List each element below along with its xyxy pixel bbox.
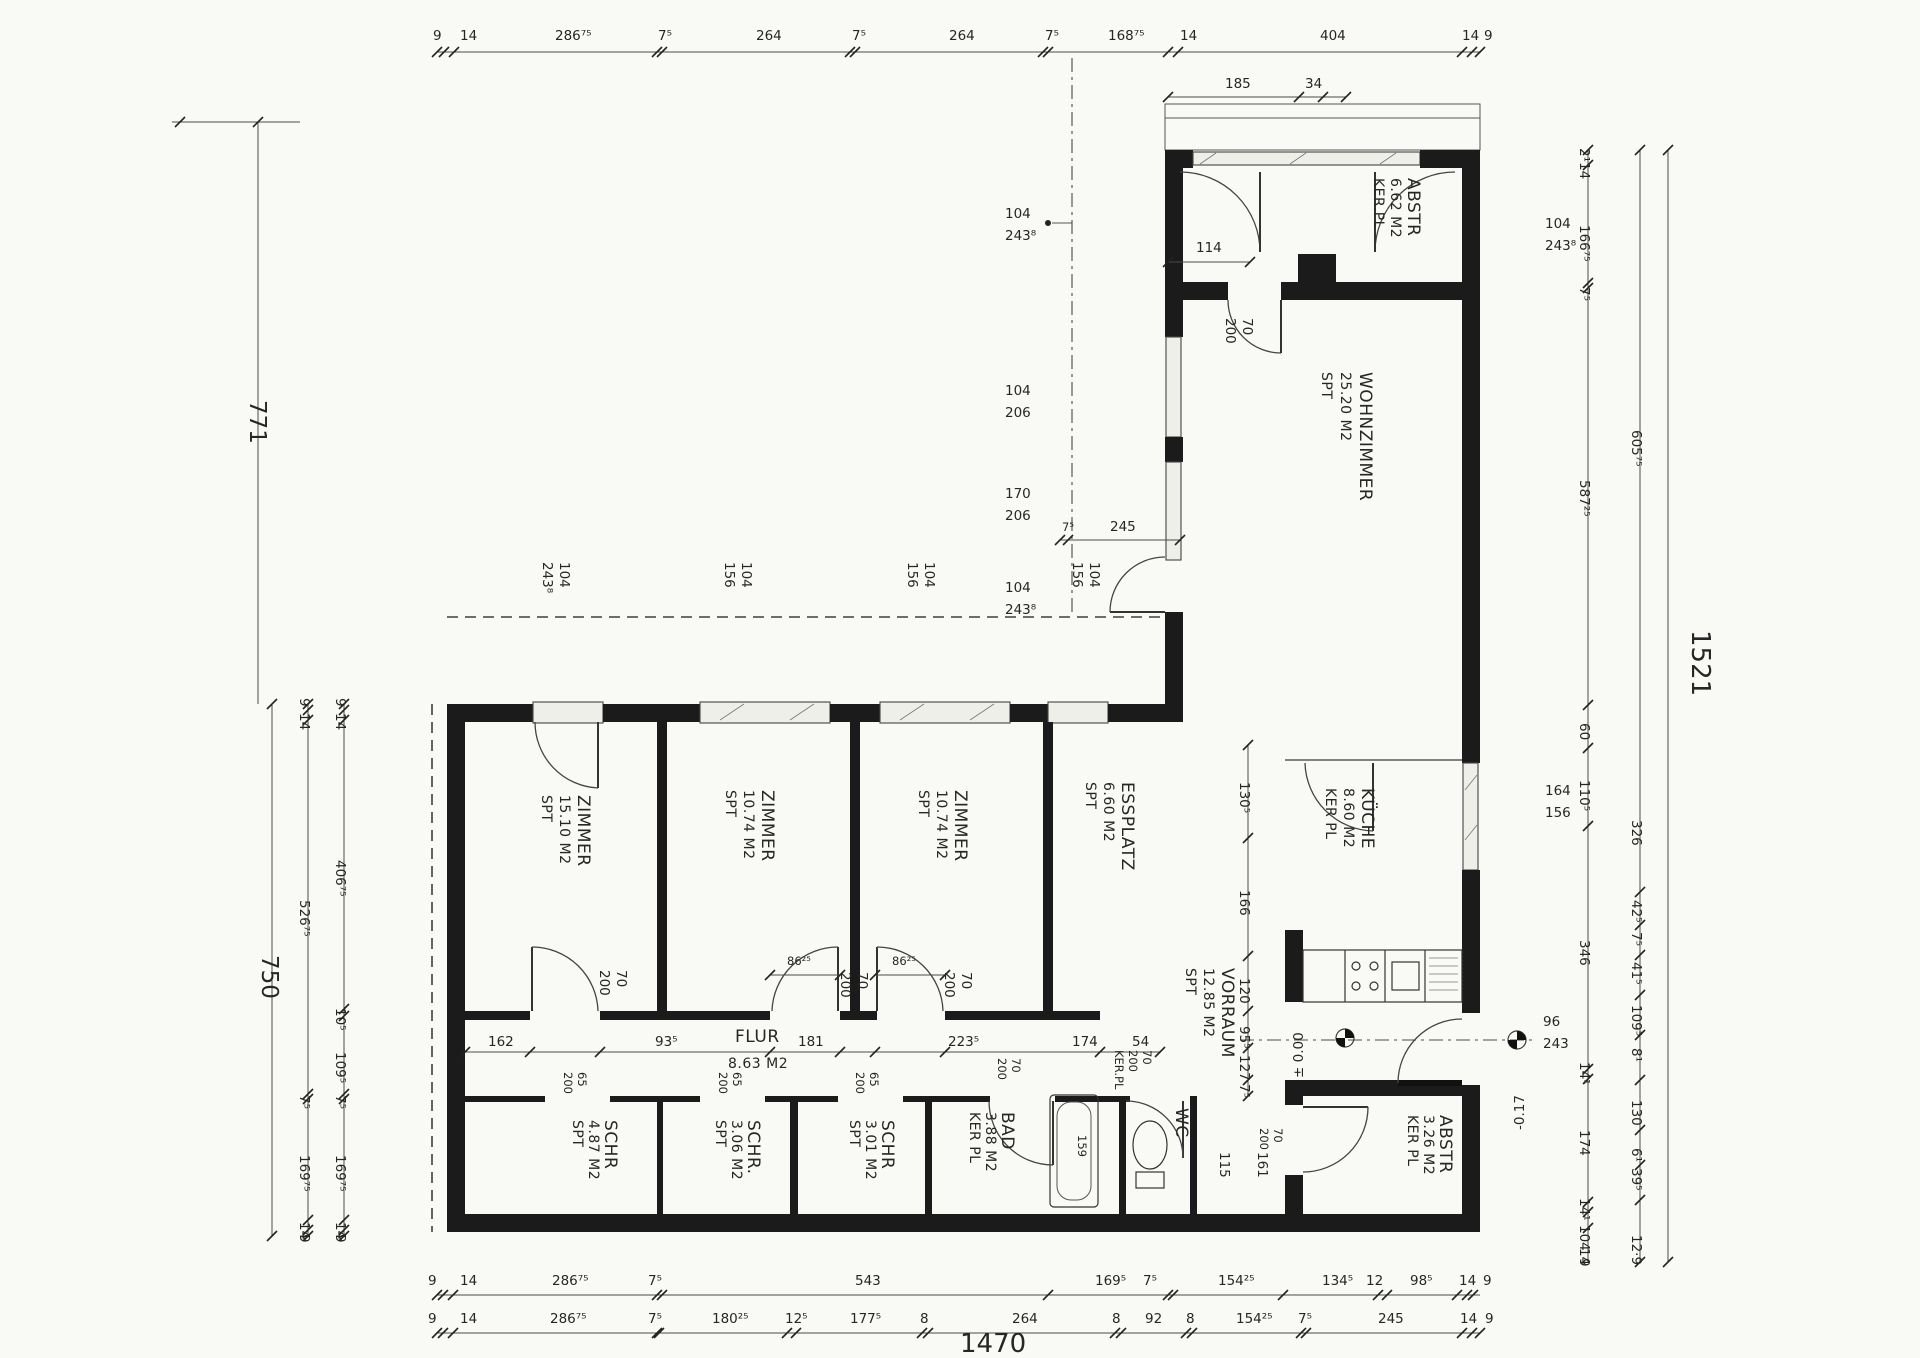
room-schr2: SCHR. 3.06 M2 SPT [712,1120,763,1180]
svg-text:164: 164 [1545,783,1571,799]
svg-text:130⁵: 130⁵ [1236,782,1252,813]
svg-text:14: 14 [460,1273,477,1289]
svg-text:104: 104 [921,562,937,588]
svg-text:7⁵: 7⁵ [296,1095,312,1109]
essplatz-window [1048,702,1108,723]
svg-text:7⁵: 7⁵ [648,1311,662,1327]
svg-text:587²⁵: 587²⁵ [1576,480,1592,517]
dim-chain-right2: 605⁷⁵32642⁵7⁵41⁵109⁵8¹1306¹39⁵12·9 [1628,430,1644,1265]
svg-text:KER PL: KER PL [1404,1115,1420,1166]
dim-chain-bottom2: 914286⁷⁵7⁵180²⁵12⁵177⁵82648928154²⁵7⁵245… [428,1311,1494,1327]
room-bad: BAD 3.88 M2 KER PL [966,1112,1017,1172]
kitchen-window [1463,763,1478,870]
svg-text:326: 326 [1628,820,1644,846]
svg-text:54: 54 [1132,1034,1149,1050]
svg-text:14: 14 [1462,28,1479,44]
svg-text:65: 65 [867,1072,881,1087]
toilet-bowl [1133,1121,1167,1169]
svg-text:110⁵: 110⁵ [1576,780,1592,811]
svg-text:9: 9 [433,28,442,44]
svg-text:7⁵: 7⁵ [332,1095,348,1109]
svg-text:9: 9 [1483,1273,1492,1289]
kitchen-fixtures [1303,950,1462,1002]
svg-text:70: 70 [958,972,974,989]
svg-text:ABSTR: ABSTR [1403,178,1423,236]
svg-text:543: 543 [855,1273,881,1289]
svg-text:104: 104 [1005,580,1031,596]
right-total: 1521 [1685,630,1715,696]
vestibule-dim-2: 161 [1254,1152,1270,1178]
svg-text:134⁵: 134⁵ [1322,1273,1353,1289]
svg-text:KER.PL: KER.PL [1370,178,1386,229]
svg-text:154²⁵: 154²⁵ [1218,1273,1255,1289]
interior-walls [465,254,1462,1232]
svg-text:264: 264 [1012,1311,1038,1327]
dim-chain-right1: 2¹14166⁷⁵7⁵587²⁵60110⁵34614¹17414¹104149 [1576,148,1592,1267]
svg-text:34: 34 [1305,76,1322,92]
zimmer1-window [533,702,603,723]
svg-text:15.10 M2: 15.10 M2 [556,795,572,865]
svg-text:12·9: 12·9 [1628,1235,1644,1265]
svg-text:243: 243 [1543,1036,1569,1052]
room-kueche: KÜCHE 8.60 M2 KER PL [1322,788,1379,849]
svg-text:8: 8 [1186,1311,1195,1327]
svg-text:14: 14 [1576,162,1592,179]
svg-text:9: 9 [296,1234,312,1243]
svg-text:406⁷⁵: 406⁷⁵ [332,860,348,897]
svg-text:WOHNZIMMER: WOHNZIMMER [1355,372,1375,501]
svg-text:7⁵: 7⁵ [1628,932,1644,946]
svg-text:243⁸: 243⁸ [1545,238,1576,254]
stove-burner [1370,962,1378,970]
svg-text:109⁵: 109⁵ [1628,1005,1644,1036]
svg-text:162: 162 [488,1034,514,1050]
svg-text:104: 104 [556,562,572,588]
svg-text:181: 181 [798,1034,824,1050]
svg-text:SPT: SPT [1318,372,1334,399]
svg-text:404: 404 [1320,28,1346,44]
svg-text:8.60 M2: 8.60 M2 [1340,788,1356,848]
svg-text:SPT: SPT [1182,968,1198,995]
svg-text:243⁸: 243⁸ [1005,602,1036,618]
svg-text:93⁵: 93⁵ [655,1034,678,1050]
svg-text:60: 60 [1576,723,1592,740]
svg-text:95⁵: 95⁵ [1236,1026,1252,1049]
toilet-tank [1136,1172,1164,1188]
svg-text:10⁵: 10⁵ [332,1008,348,1031]
svg-text:70: 70 [613,970,629,987]
svg-text:42⁵: 42⁵ [1628,900,1644,923]
svg-text:14: 14 [1180,28,1197,44]
svg-text:243⁸: 243⁸ [539,562,555,593]
stove-burner [1352,962,1360,970]
svg-text:98⁵: 98⁵ [1410,1273,1433,1289]
svg-text:3.01 M2: 3.01 M2 [862,1120,878,1180]
svg-text:86²⁵: 86²⁵ [787,954,811,968]
svg-text:14: 14 [1459,1273,1476,1289]
svg-text:ZIMMER: ZIMMER [950,790,970,862]
svg-text:200: 200 [837,972,853,998]
svg-text:SPT: SPT [538,795,554,822]
room-flur: FLUR 8.63 M2 [728,1027,788,1072]
wohnzimmer-window-2 [1166,462,1181,560]
kitchen-sink [1392,962,1419,990]
svg-text:7⁵: 7⁵ [1298,1311,1312,1327]
svg-text:2¹: 2¹ [1576,148,1592,162]
floor-plan-drawing: ± 0.00 -0.17 914286⁷⁵7⁵2647⁵2647⁵168⁷⁵14… [0,0,1920,1358]
svg-text:286⁷⁵: 286⁷⁵ [552,1273,589,1289]
svg-text:104: 104 [1545,216,1571,232]
svg-text:8¹: 8¹ [1628,1048,1644,1062]
svg-text:10.74 M2: 10.74 M2 [933,790,949,860]
room-abstr-bottom: ABSTR 3.26 M2 KER PL [1404,1115,1455,1175]
svg-text:286⁷⁵: 286⁷⁵ [550,1311,587,1327]
dim-chain-left2: 914526⁷⁵7⁵169⁷⁵149 [296,698,312,1243]
svg-text:174: 174 [1072,1034,1098,1050]
svg-text:264: 264 [949,28,975,44]
svg-text:14: 14 [460,28,477,44]
svg-text:7⁵: 7⁵ [1236,1084,1252,1098]
svg-text:70: 70 [1239,318,1255,335]
svg-text:104: 104 [738,562,754,588]
svg-text:SPT: SPT [915,790,931,817]
svg-text:4.87 M2: 4.87 M2 [585,1120,601,1180]
dim-chain-flur: 16293⁵181223⁵17454 [488,1034,1149,1050]
svg-text:169⁵: 169⁵ [1095,1273,1126,1289]
svg-text:286⁷⁵: 286⁷⁵ [555,28,592,44]
svg-text:SCHR.: SCHR. [743,1120,763,1175]
stove-burner [1352,982,1360,990]
svg-text:104: 104 [1005,206,1031,222]
left-total: 750 [256,955,282,999]
svg-text:65: 65 [730,1072,744,1087]
svg-text:9: 9 [332,1234,348,1243]
svg-text:243⁸: 243⁸ [1005,228,1036,244]
dim-chain-top: 914286⁷⁵7⁵2647⁵2647⁵168⁷⁵14404149 [433,28,1493,44]
svg-text:200: 200 [941,972,957,998]
svg-text:14¹: 14¹ [1576,1198,1592,1221]
room-zimmer3: ZIMMER 10.74 M2 SPT [915,790,970,862]
svg-text:14¹: 14¹ [1576,1062,1592,1085]
floor-plan-sheet: ± 0.00 -0.17 914286⁷⁵7⁵2647⁵2647⁵168⁷⁵14… [0,0,1920,1358]
room-schr1: SCHR 4.87 M2 SPT [569,1120,620,1180]
svg-text:104: 104 [1086,562,1102,588]
svg-text:170: 170 [1005,486,1031,502]
bath-fixtures [1050,1095,1167,1207]
svg-text:KÜCHE: KÜCHE [1357,788,1379,849]
svg-text:9: 9 [1484,28,1493,44]
svg-text:9: 9 [1576,1258,1592,1267]
dim-chain-vorraum-sub: 95⁵1277⁵ [1236,1026,1252,1098]
zimmer2-window [700,702,830,723]
svg-text:7⁵: 7⁵ [648,1273,662,1289]
svg-text:200: 200 [1126,1050,1140,1072]
svg-text:14: 14 [460,1311,477,1327]
svg-text:65: 65 [575,1072,589,1087]
svg-text:200: 200 [716,1072,730,1094]
svg-text:70: 70 [1009,1058,1023,1073]
svg-text:96: 96 [1543,1014,1560,1030]
svg-text:WC: WC [1171,1108,1191,1138]
svg-text:200: 200 [1257,1128,1271,1150]
svg-text:9: 9 [428,1273,437,1289]
bottom-total: 1470 [960,1329,1026,1358]
svg-text:6.60 M2: 6.60 M2 [1100,782,1116,842]
svg-text:200: 200 [853,1072,867,1094]
svg-text:9: 9 [428,1311,437,1327]
svg-text:174: 174 [1576,1130,1592,1156]
terrace-outline [1165,104,1480,150]
svg-text:156: 156 [721,562,737,588]
svg-text:70: 70 [854,972,870,989]
vestibule-dim-1: 115 [1216,1152,1232,1178]
svg-text:104: 104 [1005,383,1031,399]
svg-text:14: 14 [1460,1311,1477,1327]
svg-text:8: 8 [920,1311,929,1327]
svg-text:180²⁵: 180²⁵ [712,1311,749,1327]
dim-chain-bottom1: 914286⁷⁵7⁵543169⁵7⁵154²⁵134⁵1298⁵149 [428,1273,1492,1289]
svg-text:200: 200 [596,970,612,996]
svg-text:200: 200 [1222,318,1238,344]
svg-text:12⁵: 12⁵ [785,1311,808,1327]
svg-text:VORRAUM: VORRAUM [1217,968,1237,1058]
room-zimmer2: ZIMMER 10.74 M2 SPT [722,790,777,862]
svg-text:KER.PL: KER.PL [1112,1050,1126,1090]
svg-text:14: 14 [332,713,348,730]
svg-text:8.63 M2: 8.63 M2 [728,1056,788,1072]
svg-text:3.06 M2: 3.06 M2 [728,1120,744,1180]
svg-text:3.26 M2: 3.26 M2 [1420,1115,1436,1175]
svg-text:109⁵: 109⁵ [332,1052,348,1083]
level-entry: -0.17 [1512,1095,1528,1130]
svg-text:12.85 M2: 12.85 M2 [1200,968,1216,1038]
level-zero: ± 0.00 [1291,1032,1307,1078]
dim-chain-vorraum: 130⁵166120 [1236,782,1252,1004]
svg-text:130: 130 [1628,1100,1644,1126]
svg-text:206: 206 [1005,508,1031,524]
room-labels: ABSTR 6.62 M2 KER.PL WOHNZIMMER 25.20 M2… [538,178,1455,1180]
svg-text:3.88 M2: 3.88 M2 [982,1112,998,1172]
chimney [1298,254,1336,300]
svg-text:200: 200 [995,1058,1009,1080]
svg-text:245: 245 [1378,1311,1404,1327]
svg-text:9: 9 [332,698,348,707]
svg-text:166⁷⁵: 166⁷⁵ [1576,225,1592,262]
svg-text:166: 166 [1236,890,1252,916]
svg-text:168⁷⁵: 168⁷⁵ [1108,28,1145,44]
svg-text:SPT: SPT [846,1120,862,1147]
abstr-door-width: 114 [1196,240,1222,256]
dim-chain-top-sub: 18534 [1225,76,1322,92]
svg-text:KER PL: KER PL [1322,788,1338,839]
svg-text:12: 12 [1366,1273,1383,1289]
svg-text:SPT: SPT [722,790,738,817]
svg-text:70: 70 [1271,1128,1285,1143]
svg-text:BAD: BAD [997,1112,1017,1150]
svg-text:7⁵: 7⁵ [1045,28,1059,44]
svg-text:156: 156 [1069,562,1085,588]
svg-text:6.62 M2: 6.62 M2 [1387,178,1403,238]
room-schr3: SCHR 3.01 M2 SPT [846,1120,897,1180]
svg-text:70: 70 [1140,1050,1154,1065]
svg-text:185: 185 [1225,76,1251,92]
level-symbol-entry [1508,1031,1526,1049]
svg-text:127: 127 [1236,1055,1252,1081]
doors [532,172,1462,1172]
svg-text:156: 156 [904,562,920,588]
dim-chain-left1: 914406⁷⁵10⁵109⁵7⁵169⁷⁵149 [332,698,348,1243]
left-height: 771 [244,400,270,444]
svg-text:526⁷⁵: 526⁷⁵ [296,900,312,937]
svg-text:156: 156 [1545,805,1571,821]
svg-text:169⁷⁵: 169⁷⁵ [296,1155,312,1192]
wohn-door-jamb: 7⁵ [1062,520,1074,534]
svg-text:SPT: SPT [712,1120,728,1147]
svg-text:346: 346 [1576,940,1592,966]
room-zimmer1: ZIMMER 15.10 M2 SPT [538,795,593,867]
svg-text:SCHR: SCHR [877,1120,897,1169]
svg-text:9: 9 [296,698,312,707]
svg-text:154²⁵: 154²⁵ [1236,1311,1273,1327]
svg-text:7⁵: 7⁵ [1576,287,1592,301]
room-wc: WC [1171,1108,1191,1138]
stove-burner [1370,982,1378,990]
svg-text:39⁵: 39⁵ [1628,1168,1644,1191]
level-symbol-zero [1336,1029,1354,1047]
svg-text:223⁵: 223⁵ [948,1034,979,1050]
door-labels: 70200 70200 70200 70200 86²⁵ 86²⁵ 65200 … [561,318,1569,1157]
svg-text:177⁵: 177⁵ [850,1311,881,1327]
room-essplatz: ESSPLATZ 6.60 M2 SPT [1082,782,1137,871]
svg-text:25.20 M2: 25.20 M2 [1337,372,1353,442]
svg-text:ESSPLATZ: ESSPLATZ [1117,782,1137,871]
svg-text:ZIMMER: ZIMMER [573,795,593,867]
svg-text:159: 159 [1075,1135,1089,1157]
svg-text:7⁵: 7⁵ [658,28,672,44]
room-vorraum: VORRAUM 12.85 M2 SPT [1182,968,1237,1058]
svg-text:14: 14 [296,713,312,730]
svg-text:6¹: 6¹ [1628,1148,1644,1162]
svg-text:SPT: SPT [1082,782,1098,809]
wohn-door-width: 245 [1110,519,1136,535]
svg-text:200: 200 [561,1072,575,1094]
svg-text:8: 8 [1112,1311,1121,1327]
svg-text:120: 120 [1236,978,1252,1004]
svg-text:92: 92 [1145,1311,1162,1327]
wohnzimmer-window-1 [1166,337,1181,437]
svg-text:7⁵: 7⁵ [1143,1273,1157,1289]
svg-text:FLUR: FLUR [735,1027,780,1047]
svg-text:KER PL: KER PL [966,1112,982,1163]
svg-text:SCHR: SCHR [600,1120,620,1169]
zimmer3-window [880,702,1010,723]
svg-text:ABSTR: ABSTR [1435,1115,1455,1173]
svg-text:605⁷⁵: 605⁷⁵ [1628,430,1644,467]
svg-text:206: 206 [1005,405,1031,421]
svg-text:ZIMMER: ZIMMER [757,790,777,862]
svg-text:SPT: SPT [569,1120,585,1147]
svg-text:9: 9 [1485,1311,1494,1327]
svg-text:7⁵: 7⁵ [852,28,866,44]
svg-text:10.74 M2: 10.74 M2 [740,790,756,860]
room-wohnzimmer: WOHNZIMMER 25.20 M2 SPT [1318,372,1375,501]
svg-text:41⁵: 41⁵ [1628,962,1644,985]
svg-text:86²⁵: 86²⁵ [892,954,916,968]
svg-text:104: 104 [1576,1225,1592,1251]
svg-text:169⁷⁵: 169⁷⁵ [332,1155,348,1192]
svg-text:264: 264 [756,28,782,44]
